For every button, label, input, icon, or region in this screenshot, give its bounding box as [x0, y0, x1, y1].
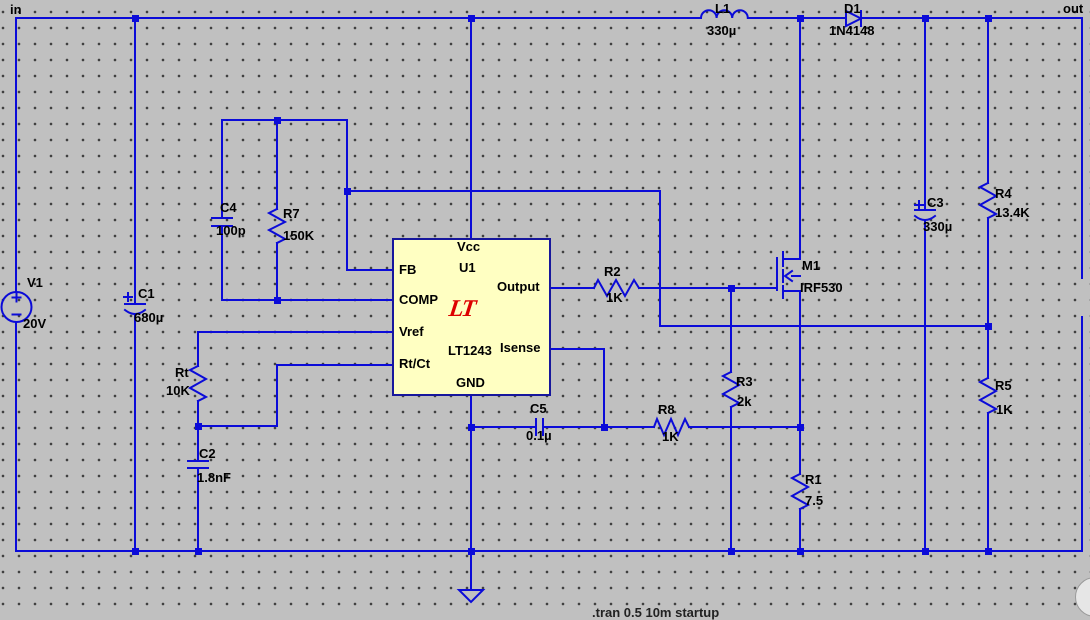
c3-value-label[interactable]: 330µ	[923, 220, 952, 234]
d1-refdes-label[interactable]: D1	[844, 2, 861, 16]
m1-value-label[interactable]: IRF530	[800, 281, 843, 295]
r3-value-label[interactable]: 2k	[737, 395, 751, 409]
spice-directive-clipped[interactable]: .tran 0.5 10m startup	[592, 606, 719, 620]
mosfet-m1-symbol[interactable]	[777, 252, 800, 298]
wire-gate-net[interactable]	[550, 288, 777, 551]
ground-symbol[interactable]	[459, 590, 483, 602]
resistor-r4-symbol[interactable]	[980, 183, 996, 218]
r8-value-label[interactable]: 1K	[662, 430, 679, 444]
junction-dots	[132, 15, 992, 555]
ic-pin-vref-label: Vref	[399, 325, 424, 339]
c2-value-label[interactable]: 1.8nF	[197, 471, 231, 485]
capacitor-c2-symbol[interactable]	[188, 461, 208, 468]
c4-refdes-label[interactable]: C4	[220, 201, 237, 215]
schematic-editor-canvas: { "window": { "width": 1090, "height": 6…	[0, 0, 1090, 612]
schematic-drawing	[0, 0, 1090, 612]
resistor-rt-symbol[interactable]	[190, 366, 206, 401]
c2-refdes-label[interactable]: C2	[199, 447, 216, 461]
l1-value-label[interactable]: 330µ	[707, 24, 736, 38]
c1-value-label[interactable]: 680µ	[134, 311, 163, 325]
r2-value-label[interactable]: 1K	[606, 291, 623, 305]
v1-refdes-label[interactable]: V1	[27, 276, 43, 290]
c3-refdes-label[interactable]: C3	[927, 196, 944, 210]
ic-pin-comp-label: COMP	[399, 293, 438, 307]
lt-logo: LT	[447, 296, 476, 323]
r5-refdes-label[interactable]: R5	[995, 379, 1012, 393]
l1-refdes-label[interactable]: L1	[715, 2, 730, 16]
c5-refdes-label[interactable]: C5	[530, 402, 547, 416]
ic-pin-gnd-label: GND	[456, 376, 485, 390]
r1-value-label[interactable]: 7.5	[805, 494, 823, 508]
c5-value-label[interactable]: 0.1µ	[526, 429, 552, 443]
rt-refdes-label[interactable]: Rt	[175, 366, 189, 380]
r4-value-label[interactable]: 13.4K	[995, 206, 1030, 220]
wire-c4-r7[interactable]	[222, 120, 393, 300]
ic-pin-rtct-label: Rt/Ct	[399, 357, 430, 371]
r5-value-label[interactable]: 1K	[996, 403, 1013, 417]
ic-pin-output-label: Output	[497, 280, 540, 294]
wire-vref-rtct[interactable]	[198, 332, 393, 551]
ic-refdes-label[interactable]: U1	[459, 261, 476, 275]
r2-refdes-label[interactable]: R2	[604, 265, 621, 279]
r4-refdes-label[interactable]: R4	[995, 187, 1012, 201]
c1-refdes-label[interactable]: C1	[138, 287, 155, 301]
net-label-out[interactable]: out	[1063, 2, 1083, 16]
r7-refdes-label[interactable]: R7	[283, 207, 300, 221]
ic-pin-fb-label: FB	[399, 263, 416, 277]
ic-pin-vcc-label: Vcc	[457, 240, 480, 254]
r8-refdes-label[interactable]: R8	[658, 403, 675, 417]
wire-output-side[interactable]	[925, 18, 988, 551]
net-label-in[interactable]: in	[10, 3, 22, 17]
ic-pin-isense-label: Isense	[500, 341, 540, 355]
resistor-r5-symbol[interactable]	[980, 378, 996, 413]
v1-value-label[interactable]: 20V	[23, 317, 46, 331]
d1-value-label[interactable]: 1N4148	[829, 24, 875, 38]
c4-value-label[interactable]: 100p	[216, 224, 246, 238]
rt-value-label[interactable]: 10K	[166, 384, 190, 398]
r1-refdes-label[interactable]: R1	[805, 473, 822, 487]
r7-value-label[interactable]: 150K	[283, 229, 314, 243]
r3-refdes-label[interactable]: R3	[736, 375, 753, 389]
m1-refdes-label[interactable]: M1	[802, 259, 820, 273]
ic-part-label[interactable]: LT1243	[448, 344, 492, 358]
